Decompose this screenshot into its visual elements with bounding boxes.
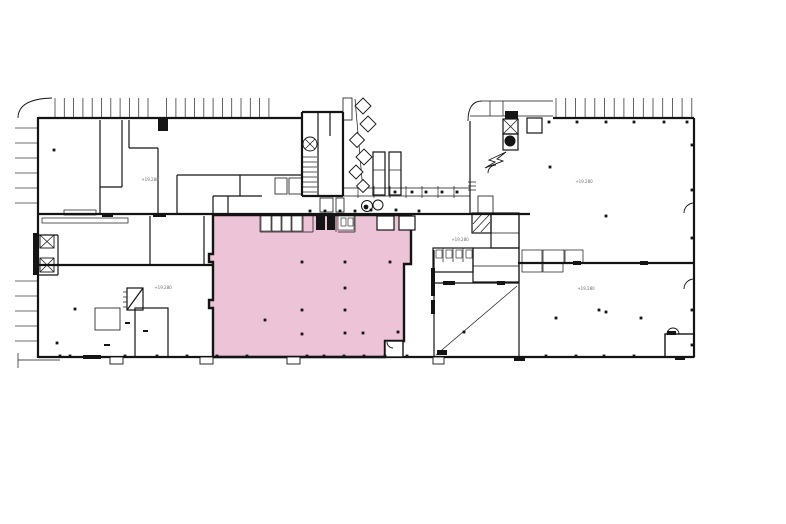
sawtooth-roof-elements (349, 98, 376, 193)
highlighted-unit[interactable] (209, 215, 411, 357)
floor-plan-page: +19.280+19.280+19.280+19.280+19.280 (0, 0, 786, 524)
floor-plan-drawing: +19.280+19.280+19.280+19.280+19.280 (0, 0, 786, 524)
circular-elements (303, 136, 516, 212)
elevation-label: +19.280 (141, 177, 159, 182)
elevation-label: +19.280 (154, 285, 172, 290)
elevation-label: +19.280 (451, 237, 469, 242)
elevation-label: +19.280 (577, 286, 595, 291)
elevation-label: +19.280 (575, 179, 593, 184)
